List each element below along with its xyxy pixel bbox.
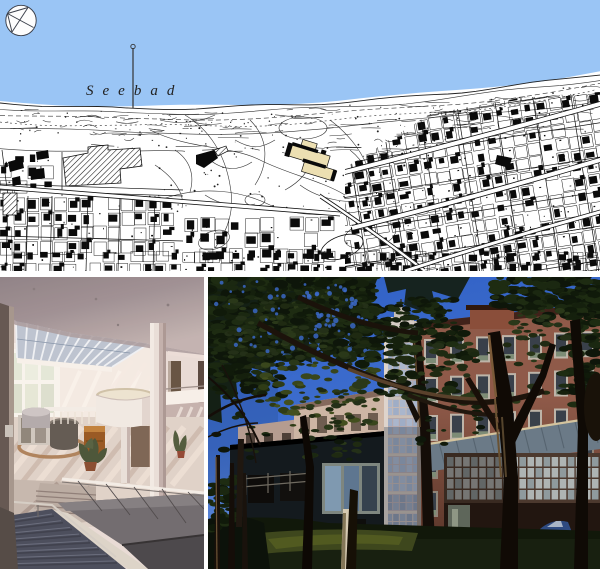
svg-text:Seebad: Seebad [86, 83, 183, 99]
